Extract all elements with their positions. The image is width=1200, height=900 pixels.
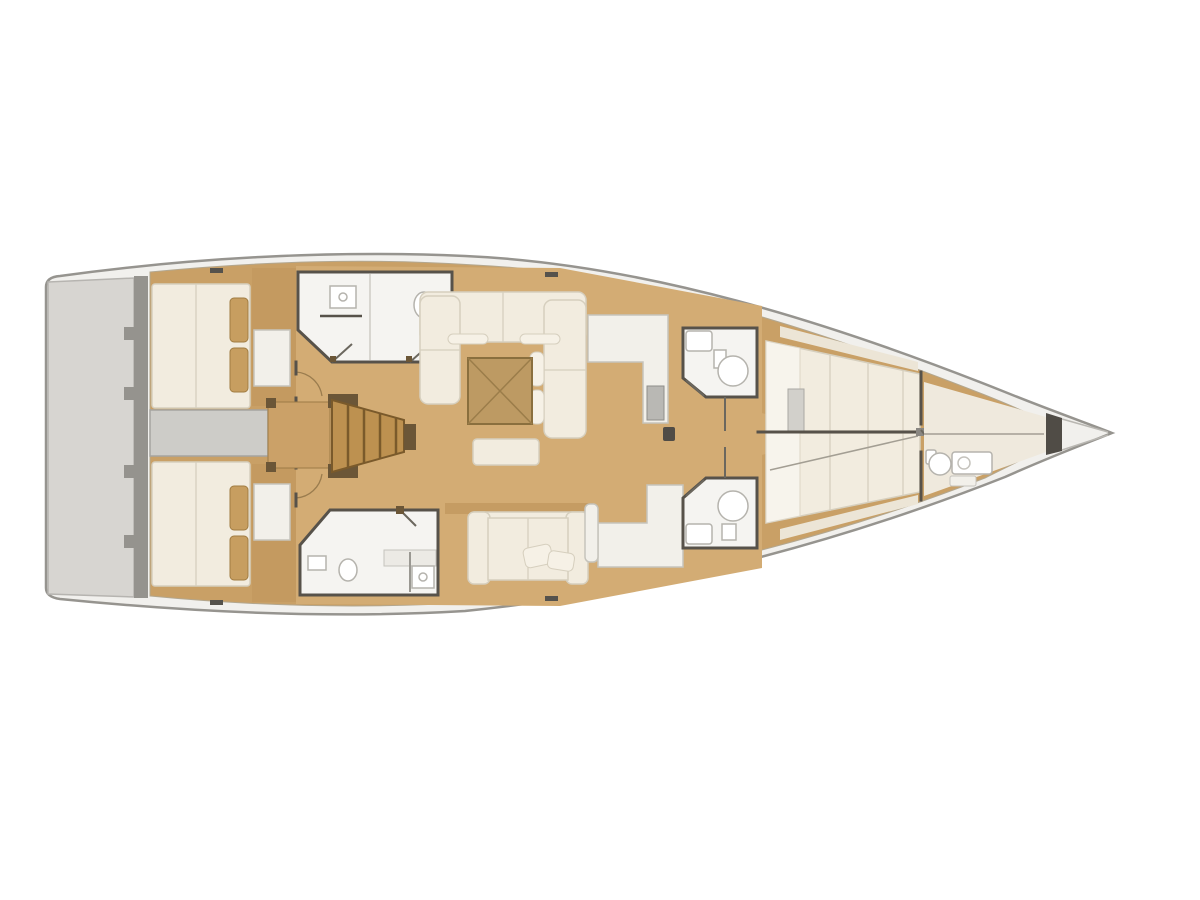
aft-head-starboard: [300, 506, 438, 595]
chain-locker: [1046, 413, 1062, 455]
toilet-tank: [722, 524, 736, 540]
mid-head-port: [683, 328, 757, 397]
sink: [686, 524, 712, 544]
berth-step: [788, 389, 804, 431]
transom-step-notch: [124, 327, 134, 340]
cushion-front: [520, 334, 560, 344]
transom-step-notch: [124, 465, 134, 478]
sink: [308, 556, 326, 570]
shower-tray: [412, 566, 434, 588]
sofa-armrest: [468, 512, 490, 584]
transom-steps: [134, 276, 148, 598]
forward-berth-starboard-foot: [766, 433, 800, 523]
locker-front: [950, 476, 976, 486]
step-base: [404, 424, 416, 450]
pillow: [230, 486, 248, 530]
companionway-frame: [266, 398, 276, 408]
floor-plan-canvas: [0, 0, 1200, 900]
toilet: [339, 559, 357, 581]
cushion-front: [448, 334, 488, 344]
transom-step-notch: [124, 535, 134, 548]
companionway-landing: [268, 402, 330, 468]
sofa-pillow: [547, 550, 575, 572]
cleat: [545, 596, 558, 601]
cleat: [210, 600, 223, 605]
stern-group: [48, 276, 148, 598]
toilet: [718, 491, 748, 521]
mast-post: [663, 427, 675, 441]
engine-room: [150, 410, 268, 456]
cleat: [210, 268, 223, 273]
toilet: [929, 453, 951, 475]
door-hinge: [406, 356, 412, 362]
dinette-bench: [473, 439, 539, 465]
aft-cabin-starboard-wardrobe: [254, 484, 290, 540]
pillow: [230, 298, 248, 342]
aft-cabin-port-wardrobe: [254, 330, 290, 386]
toilet: [718, 356, 748, 386]
cleat: [545, 272, 558, 277]
yacht-floor-plan-image: [0, 0, 1200, 900]
dinette-sofa-right: [544, 300, 586, 438]
pillow: [230, 536, 248, 580]
stove: [647, 386, 664, 420]
sink: [686, 331, 712, 351]
swim-platform: [48, 278, 134, 597]
transom-step-notch: [124, 387, 134, 400]
galley-end-post: [585, 504, 598, 562]
shower-tray: [330, 286, 356, 308]
companionway-frame: [266, 462, 276, 472]
door-hinge: [330, 356, 336, 362]
pillow: [230, 348, 248, 392]
mid-head-starboard: [683, 478, 757, 548]
door-hinge: [396, 506, 404, 514]
